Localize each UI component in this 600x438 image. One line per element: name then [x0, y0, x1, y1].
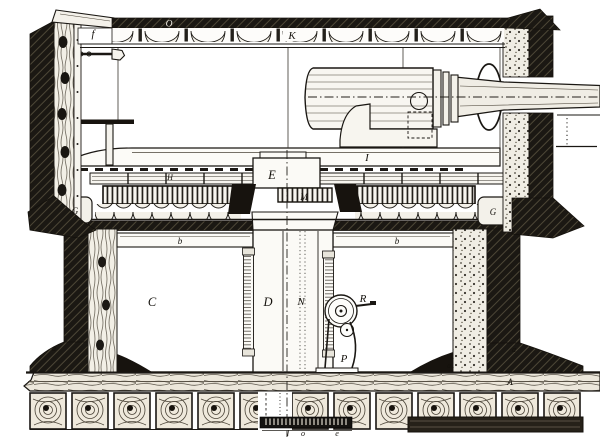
- label-b-right: b: [395, 236, 400, 246]
- label-m: M: [299, 192, 308, 202]
- label-a-mid: a: [447, 361, 451, 370]
- roof-beam-arcs: [112, 28, 504, 42]
- brace-right: [333, 233, 453, 247]
- rollers-left: [95, 204, 241, 219]
- label-base-o: o: [301, 429, 305, 438]
- rack-teeth-right: [357, 186, 475, 204]
- label-g-right: G: [490, 207, 497, 217]
- label-g-left: G: [72, 206, 79, 216]
- brace-left: [117, 233, 253, 247]
- crank-handle: [370, 301, 376, 305]
- label-o: O: [166, 20, 173, 30]
- label-d: D: [262, 295, 272, 309]
- label-c: C: [148, 295, 157, 309]
- label-a-right: a: [512, 345, 516, 354]
- turret-section-engraving: f O K E H I M G G b b C D N R P A a a a …: [0, 0, 600, 438]
- guide-screw-left: [243, 248, 255, 356]
- substructure: [30, 212, 583, 373]
- roof-plate-bay: [78, 28, 112, 44]
- label-p: P: [340, 353, 348, 365]
- spindle-cone: [252, 212, 338, 230]
- label-n: N: [296, 296, 305, 308]
- rack-teeth-left: [103, 186, 245, 204]
- spindle-column: [243, 212, 339, 372]
- label-base-e: e: [335, 429, 339, 438]
- label-k: K: [287, 30, 296, 42]
- engraving-page: f O K E H I M G G b b C D N R P A a a a …: [0, 0, 600, 438]
- label-r: R: [359, 293, 367, 305]
- label-b-left: b: [178, 236, 183, 246]
- lower-planking-right: [408, 417, 583, 432]
- label-e: E: [267, 168, 276, 182]
- label-a-cap: A: [506, 377, 513, 387]
- label-a-left: a: [52, 344, 56, 353]
